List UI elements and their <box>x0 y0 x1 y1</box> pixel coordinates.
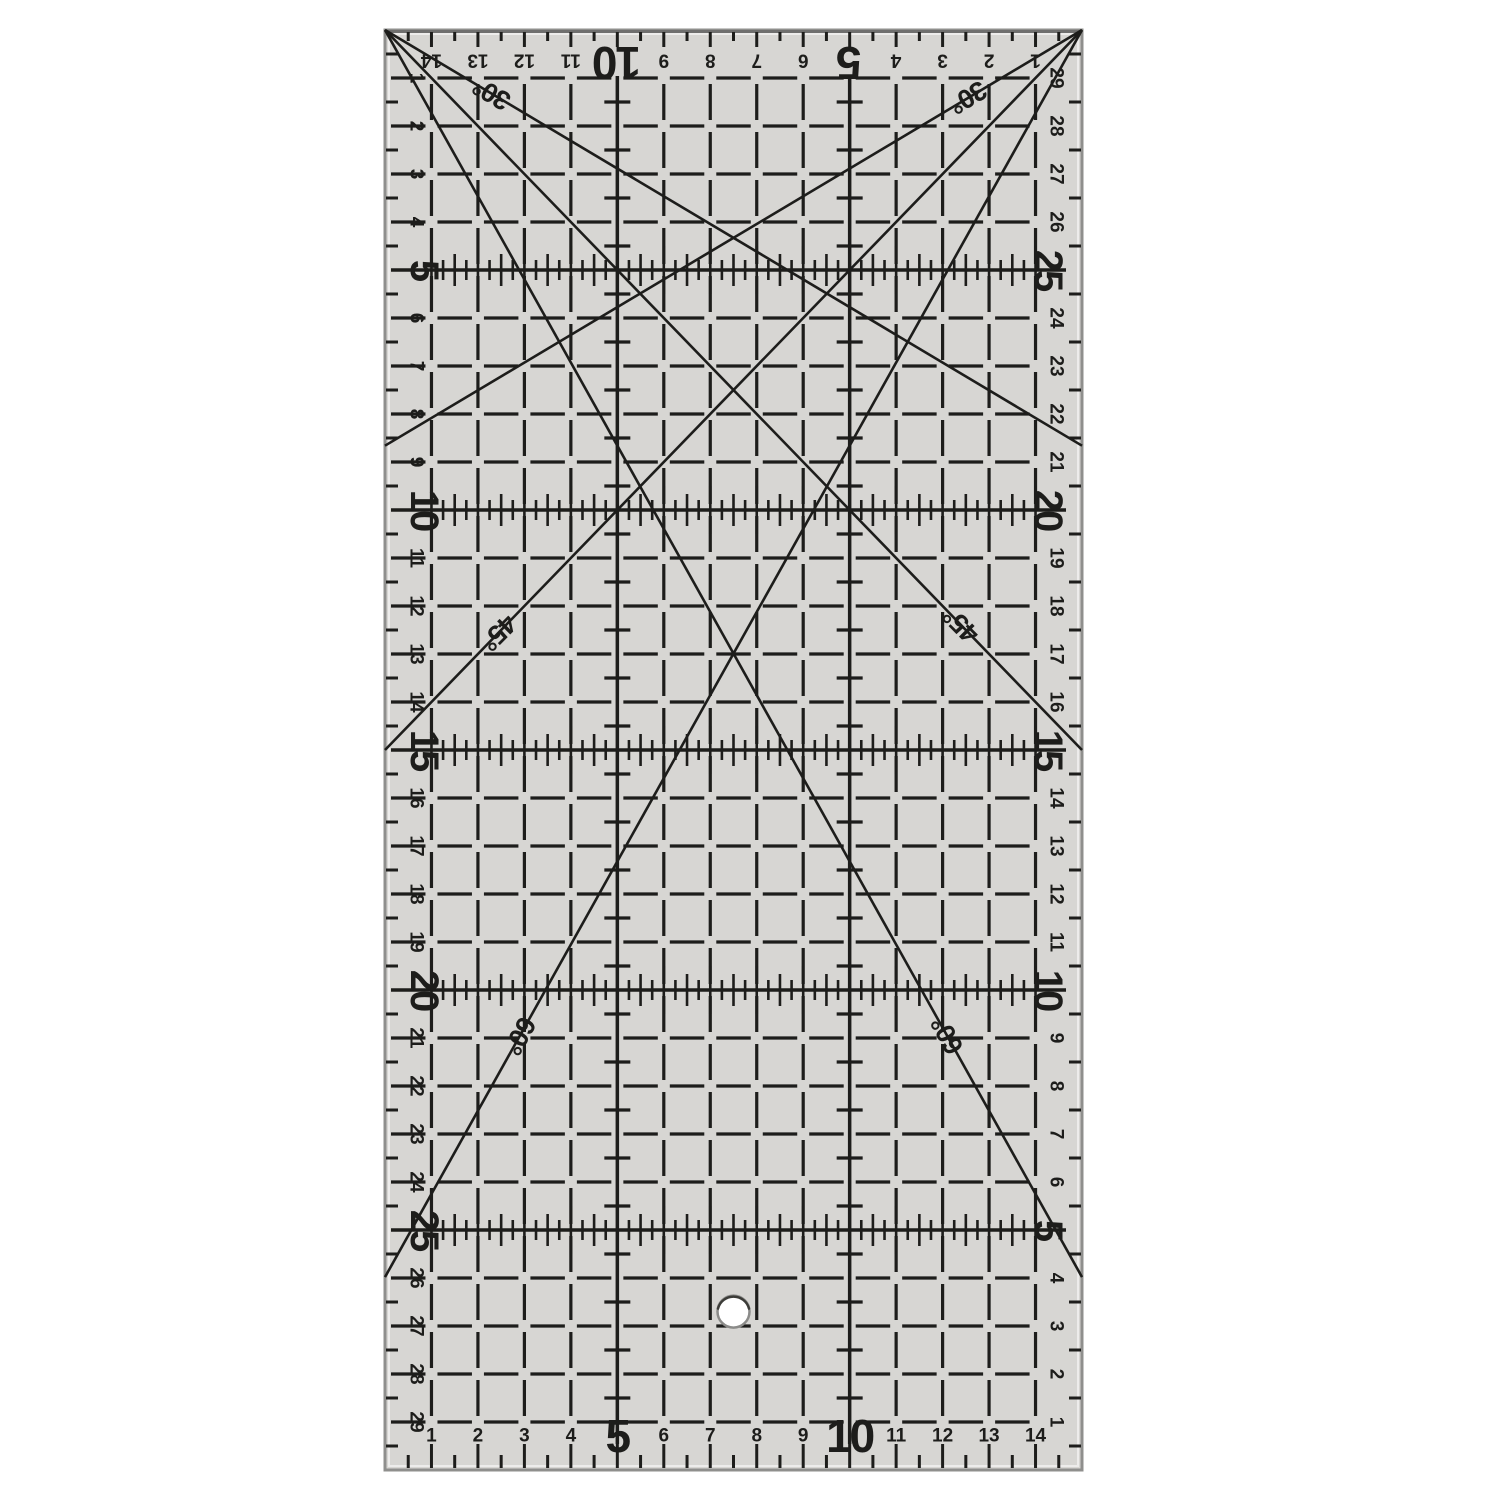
svg-text:5: 5 <box>402 260 446 282</box>
quilting-ruler: 1234567891011121314123456789101112131412… <box>0 0 1500 1500</box>
svg-text:2: 2 <box>984 50 995 71</box>
svg-text:28: 28 <box>406 1363 427 1384</box>
svg-text:7: 7 <box>705 1426 716 1447</box>
svg-text:29: 29 <box>406 1411 427 1432</box>
svg-text:27: 27 <box>1046 163 1067 184</box>
svg-text:12: 12 <box>932 1426 953 1447</box>
svg-text:9: 9 <box>1046 1033 1067 1044</box>
svg-text:3: 3 <box>1046 1321 1067 1332</box>
hanging-hole <box>718 1296 750 1328</box>
svg-text:19: 19 <box>406 931 427 952</box>
svg-text:13: 13 <box>406 643 427 664</box>
svg-text:26: 26 <box>406 1267 427 1288</box>
svg-text:14: 14 <box>406 691 427 713</box>
svg-text:29: 29 <box>1046 67 1067 88</box>
svg-text:9: 9 <box>798 1426 809 1447</box>
svg-text:7: 7 <box>751 50 762 71</box>
svg-text:8: 8 <box>1046 1081 1067 1092</box>
svg-text:11: 11 <box>560 50 581 71</box>
svg-text:6: 6 <box>1046 1177 1067 1188</box>
svg-text:22: 22 <box>406 1075 427 1096</box>
svg-text:21: 21 <box>406 1027 427 1049</box>
svg-text:14: 14 <box>1046 787 1067 809</box>
svg-text:8: 8 <box>406 409 427 420</box>
svg-text:12: 12 <box>406 595 427 616</box>
svg-text:1: 1 <box>1030 50 1041 71</box>
svg-text:17: 17 <box>406 835 427 856</box>
svg-text:24: 24 <box>406 1171 427 1193</box>
svg-text:4: 4 <box>1046 1273 1067 1284</box>
svg-text:5: 5 <box>1026 1220 1070 1242</box>
svg-text:5: 5 <box>606 1410 631 1462</box>
svg-text:27: 27 <box>406 1315 427 1336</box>
svg-text:4: 4 <box>566 1426 577 1447</box>
svg-text:12: 12 <box>514 50 535 71</box>
product-photo: 1234567891011121314123456789101112131412… <box>0 0 1500 1500</box>
svg-text:3: 3 <box>937 50 948 71</box>
svg-text:18: 18 <box>406 883 427 904</box>
svg-text:25: 25 <box>402 1210 446 1252</box>
svg-text:1: 1 <box>426 1426 437 1447</box>
svg-text:15: 15 <box>1026 730 1070 772</box>
svg-text:13: 13 <box>467 50 488 71</box>
svg-text:5: 5 <box>836 37 861 89</box>
svg-text:9: 9 <box>659 50 670 71</box>
svg-text:2: 2 <box>1046 1369 1067 1380</box>
svg-text:18: 18 <box>1046 595 1067 616</box>
svg-text:14: 14 <box>1025 1426 1047 1447</box>
svg-text:21: 21 <box>1046 451 1067 473</box>
svg-text:15: 15 <box>402 730 446 772</box>
svg-text:14: 14 <box>420 50 442 71</box>
svg-text:6: 6 <box>659 1426 670 1447</box>
svg-text:12: 12 <box>1046 883 1067 904</box>
svg-text:8: 8 <box>705 50 716 71</box>
svg-text:9: 9 <box>406 457 427 468</box>
svg-text:1: 1 <box>1046 1417 1067 1428</box>
svg-text:20: 20 <box>402 970 446 1011</box>
svg-text:23: 23 <box>1046 355 1067 376</box>
svg-text:19: 19 <box>1046 547 1067 568</box>
svg-text:16: 16 <box>406 787 427 808</box>
svg-text:2: 2 <box>473 1426 484 1447</box>
svg-text:10: 10 <box>402 490 446 531</box>
svg-text:2: 2 <box>406 121 427 132</box>
svg-text:22: 22 <box>1046 403 1067 424</box>
svg-text:25: 25 <box>1026 250 1070 292</box>
svg-text:11: 11 <box>886 1426 907 1447</box>
svg-text:20: 20 <box>1026 490 1070 531</box>
svg-text:13: 13 <box>1046 835 1067 856</box>
svg-text:4: 4 <box>890 50 901 71</box>
svg-text:6: 6 <box>406 313 427 324</box>
svg-text:4: 4 <box>406 217 427 228</box>
svg-text:3: 3 <box>406 169 427 180</box>
svg-text:10: 10 <box>1026 970 1070 1011</box>
svg-text:11: 11 <box>406 548 427 569</box>
svg-text:28: 28 <box>1046 115 1067 136</box>
svg-text:24: 24 <box>1046 307 1067 329</box>
svg-text:13: 13 <box>978 1426 999 1447</box>
svg-text:1: 1 <box>406 73 427 84</box>
svg-text:10: 10 <box>593 37 641 89</box>
svg-text:26: 26 <box>1046 211 1067 232</box>
svg-text:23: 23 <box>406 1123 427 1144</box>
svg-text:16: 16 <box>1046 691 1067 712</box>
svg-text:7: 7 <box>1046 1129 1067 1140</box>
svg-text:10: 10 <box>826 1410 874 1462</box>
svg-text:3: 3 <box>519 1426 530 1447</box>
svg-text:11: 11 <box>1046 932 1067 953</box>
svg-text:8: 8 <box>751 1426 762 1447</box>
svg-text:7: 7 <box>406 361 427 372</box>
svg-text:17: 17 <box>1046 643 1067 664</box>
svg-text:6: 6 <box>798 50 809 71</box>
